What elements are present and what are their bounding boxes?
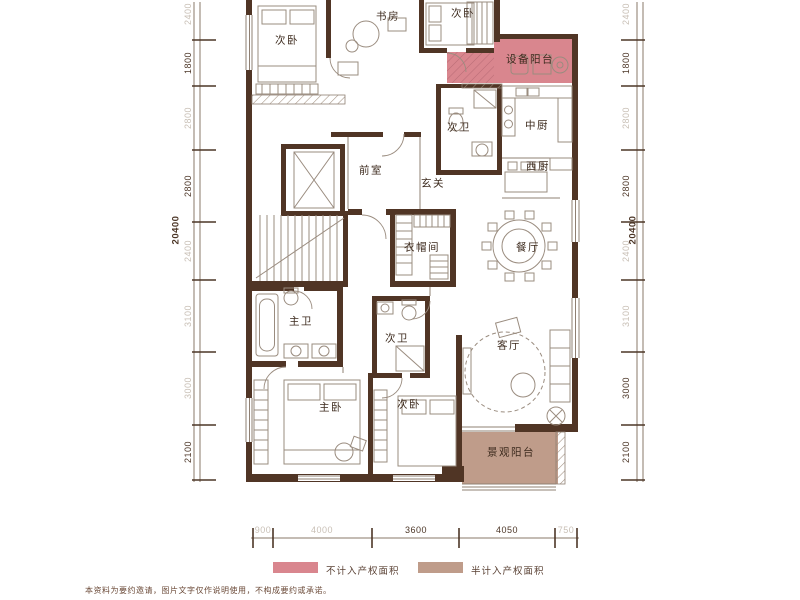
room-label-living-room: 客厅	[497, 338, 521, 353]
dim-left-overall: 20400	[171, 216, 182, 245]
dim-bottom-0: 900	[255, 525, 272, 535]
floorplan-drawing	[0, 0, 800, 600]
dim-left-0: 2400	[183, 3, 193, 25]
dim-left-4: 2400	[183, 240, 193, 262]
legend-label-half-property: 半计入产权面积	[471, 563, 545, 577]
dim-bottom-3: 4050	[496, 525, 518, 535]
room-label-cloakroom: 衣帽间	[404, 240, 440, 255]
dim-right-6: 3000	[621, 377, 631, 399]
room-label-view-balcony: 景观阳台	[487, 445, 535, 460]
room-label-study: 书房	[376, 9, 400, 24]
room-label-front-room: 前室	[359, 163, 383, 178]
dim-bottom-2: 3600	[405, 525, 427, 535]
dim-right-1: 1800	[621, 52, 631, 74]
dim-left-5: 3100	[183, 305, 193, 327]
disclaimer-text: 本资料为要约邀请，图片文字仅作说明使用，不构成要约或承诺。	[85, 585, 332, 596]
legend-swatch-no-property	[273, 562, 318, 573]
dim-left-3: 2800	[183, 175, 193, 197]
legend-label-no-property: 不计入产权面积	[326, 563, 400, 577]
room-label-dining-room: 餐厅	[516, 240, 540, 255]
dim-bottom-1: 4000	[311, 525, 333, 535]
dim-right-7: 2100	[621, 441, 631, 463]
room-label-kitchen-chinese: 中厨	[525, 118, 549, 133]
room-label-bath-master: 主卫	[289, 314, 313, 329]
dim-right-2: 2800	[621, 107, 631, 129]
legend-swatch-half-property	[418, 562, 463, 573]
dim-left-6: 3000	[183, 377, 193, 399]
dim-right-3: 2800	[621, 175, 631, 197]
dim-bottom-4: 750	[558, 525, 575, 535]
floorplan-canvas: 次卧 书房 次卧 设备阳台 次卫 中厨 西厨 前室 玄关 衣帽间 餐厅 主卫 次…	[0, 0, 800, 600]
dim-right-0: 2400	[621, 3, 631, 25]
room-label-bedroom-lower: 次卧	[397, 397, 421, 412]
dim-left-1: 1800	[183, 52, 193, 74]
room-label-bath-secondary: 次卫	[385, 331, 409, 346]
dim-right-5: 3100	[621, 305, 631, 327]
room-label-foyer: 玄关	[421, 176, 445, 191]
dim-right-overall: 20400	[628, 216, 639, 245]
dim-left-2: 2800	[183, 107, 193, 129]
room-label-kitchen-western: 西厨	[526, 159, 550, 174]
dim-left-7: 2100	[183, 441, 193, 463]
room-label-equipment-balcony: 设备阳台	[506, 52, 554, 67]
room-label-bedroom-top-right: 次卧	[451, 6, 475, 21]
room-label-bedroom-master: 主卧	[319, 400, 343, 415]
room-label-bedroom-top-left: 次卧	[275, 33, 299, 48]
legend: 不计入产权面积 半计入产权面积	[0, 562, 800, 576]
room-label-bath-upper: 次卫	[447, 120, 471, 135]
